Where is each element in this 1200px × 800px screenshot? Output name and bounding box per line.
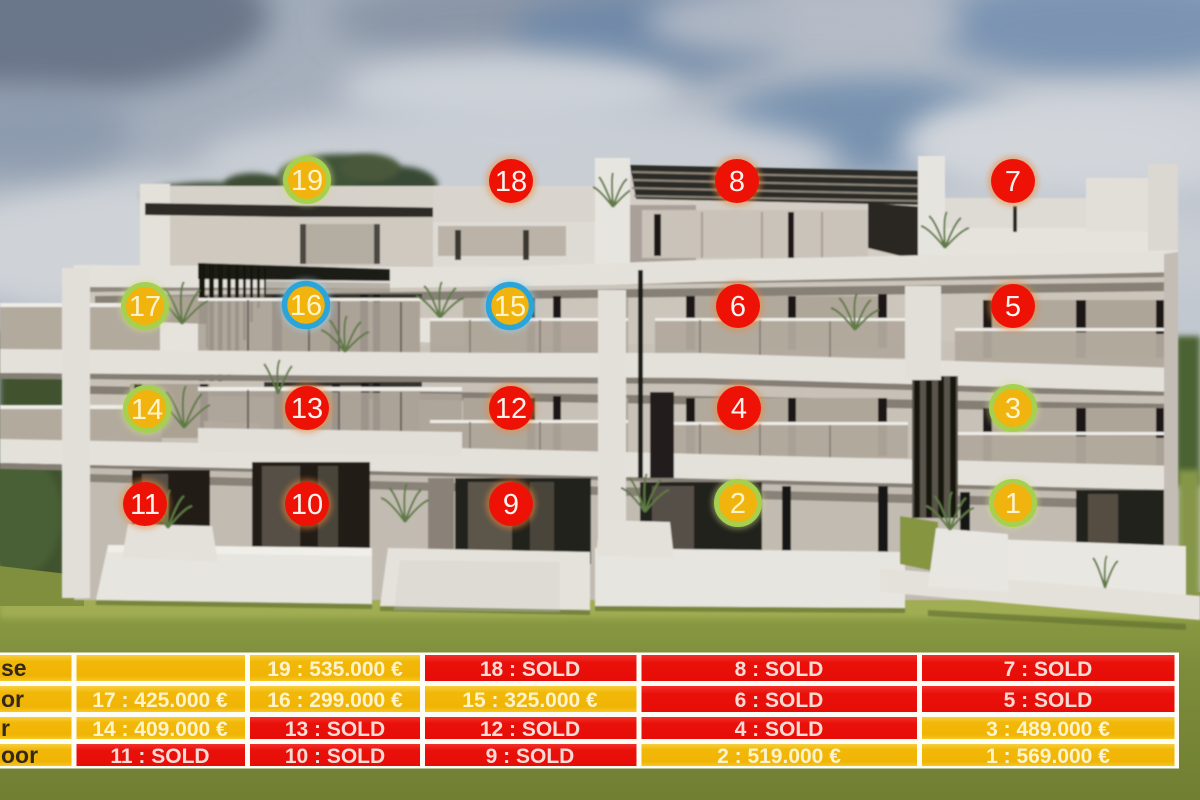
svg-text:15: 15 [494, 291, 526, 323]
svg-text:6: 6 [730, 291, 746, 323]
svg-text:17: 17 [129, 291, 161, 323]
svg-text:2 : 519.000 €: 2 : 519.000 € [717, 745, 841, 768]
svg-text:12: 12 [495, 393, 527, 425]
svg-text:8 : SOLD: 8 : SOLD [735, 658, 824, 681]
svg-text:4 : SOLD: 4 : SOLD [735, 718, 824, 741]
svg-text:oor: oor [1, 742, 38, 768]
svg-text:14: 14 [131, 394, 163, 426]
svg-text:9 : SOLD: 9 : SOLD [486, 745, 575, 768]
svg-text:9: 9 [503, 489, 519, 521]
svg-text:3 : 489.000 €: 3 : 489.000 € [986, 718, 1110, 741]
svg-text:13: 13 [291, 393, 323, 425]
svg-text:5 : SOLD: 5 : SOLD [1004, 689, 1093, 712]
svg-text:3: 3 [1005, 393, 1021, 425]
svg-text:12 : SOLD: 12 : SOLD [480, 718, 580, 741]
svg-text:18: 18 [495, 166, 527, 198]
svg-text:16 : 299.000 €: 16 : 299.000 € [267, 689, 403, 712]
svg-text:10 : SOLD: 10 : SOLD [285, 745, 385, 768]
svg-text:11 : SOLD: 11 : SOLD [110, 745, 209, 768]
svg-text:se: se [1, 655, 27, 681]
svg-text:13 : SOLD: 13 : SOLD [285, 718, 385, 741]
svg-text:11: 11 [130, 489, 160, 521]
svg-text:19 : 535.000 €: 19 : 535.000 € [267, 658, 403, 681]
svg-text:7 : SOLD: 7 : SOLD [1004, 658, 1093, 681]
svg-text:7: 7 [1005, 166, 1021, 198]
svg-text:r: r [1, 715, 10, 741]
svg-text:6 : SOLD: 6 : SOLD [735, 689, 824, 712]
svg-text:16: 16 [290, 290, 322, 322]
svg-text:4: 4 [731, 393, 747, 425]
svg-text:10: 10 [291, 489, 323, 521]
svg-text:2: 2 [730, 488, 746, 520]
svg-text:15 : 325.000 €: 15 : 325.000 € [462, 689, 598, 712]
svg-text:1 : 569.000 €: 1 : 569.000 € [986, 745, 1110, 768]
svg-text:8: 8 [729, 166, 745, 198]
svg-text:or: or [1, 686, 24, 712]
svg-text:17 : 425.000 €: 17 : 425.000 € [92, 689, 228, 712]
svg-text:14 : 409.000 €: 14 : 409.000 € [92, 718, 228, 741]
svg-text:1: 1 [1005, 488, 1021, 520]
svg-text:18 : SOLD: 18 : SOLD [480, 658, 580, 681]
svg-text:19: 19 [291, 165, 323, 197]
svg-text:5: 5 [1005, 291, 1021, 323]
